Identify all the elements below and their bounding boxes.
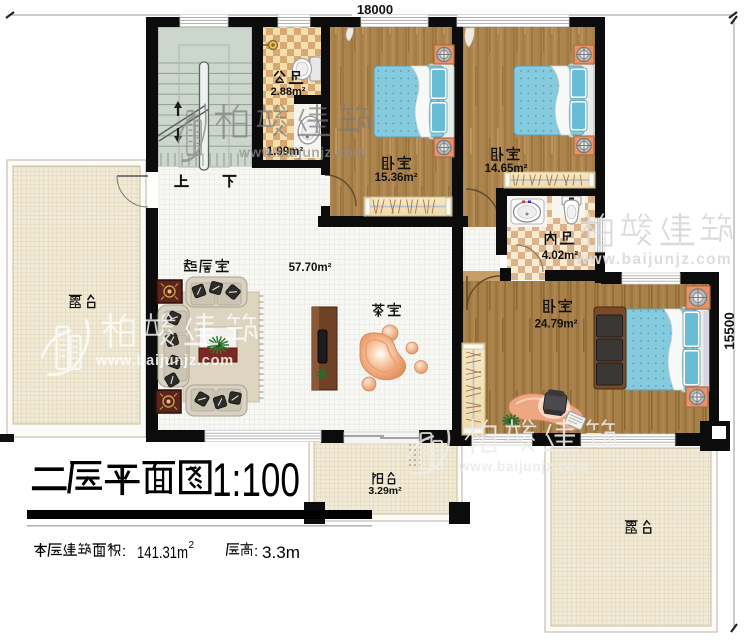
svg-text:3.3m: 3.3m xyxy=(262,543,300,562)
svg-text:www.baijunjz.com: www.baijunjz.com xyxy=(575,251,732,268)
svg-text:2: 2 xyxy=(189,540,195,551)
svg-text:www.baijunjz.com: www.baijunjz.com xyxy=(238,144,366,160)
svg-text:141.31m: 141.31m xyxy=(137,543,188,562)
svg-text:4.02m²: 4.02m² xyxy=(542,250,579,262)
svg-text::: : xyxy=(254,543,258,560)
svg-text:3.29m²: 3.29m² xyxy=(368,485,402,497)
svg-text:15.36m²: 15.36m² xyxy=(375,172,418,184)
svg-text:www.baijunjz.com: www.baijunjz.com xyxy=(458,459,588,474)
svg-text:15500: 15500 xyxy=(722,312,737,350)
svg-text::: : xyxy=(122,543,126,560)
svg-text:1:100: 1:100 xyxy=(212,453,300,506)
svg-text:2.88m²: 2.88m² xyxy=(271,86,306,98)
svg-text:14.65m²: 14.65m² xyxy=(485,163,528,175)
svg-text:57.70m²: 57.70m² xyxy=(289,262,332,274)
svg-text:24.79m²: 24.79m² xyxy=(535,319,578,331)
svg-text:www.baijunjz.com: www.baijunjz.com xyxy=(95,353,234,369)
